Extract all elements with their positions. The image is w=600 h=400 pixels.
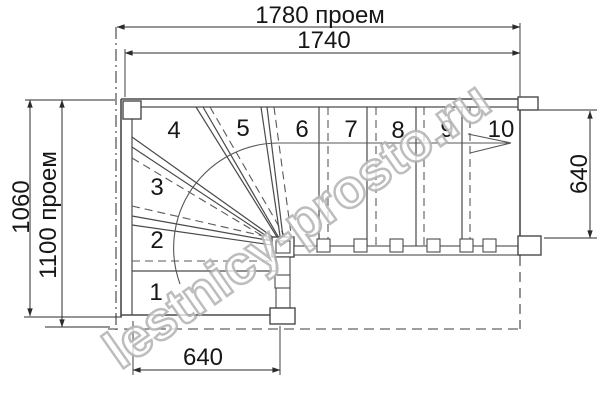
step-label-9: 9 <box>440 116 453 143</box>
top-right-rail-cap <box>518 97 538 110</box>
stair-plan-drawing: 1780 проем 1740 1060 1100 проем 640 640 <box>0 0 600 400</box>
baluster <box>317 239 330 252</box>
dim-label-top-opening: 1780 проем <box>255 2 385 29</box>
dim-label-left-height: 1060 <box>8 180 35 233</box>
staircase-plan-page: 1780 проем 1740 1060 1100 проем 640 640 <box>0 0 600 400</box>
dimension-left-opening: 1100 проем <box>35 100 110 327</box>
step-label-10: 10 <box>488 116 515 143</box>
baluster <box>483 239 496 252</box>
step-label-4: 4 <box>167 117 180 144</box>
dimension-top-stair: 1740 <box>125 27 520 97</box>
step-label-1: 1 <box>149 279 162 306</box>
stair-structure-outline <box>121 97 538 317</box>
lower-rail-end-post <box>270 308 295 324</box>
step-label-7: 7 <box>344 116 357 143</box>
step-label-6: 6 <box>295 116 308 143</box>
dim-label-right-width: 640 <box>566 154 593 194</box>
baluster <box>275 275 290 288</box>
step-label-8: 8 <box>391 117 404 144</box>
dim-label-bottom-width: 640 <box>183 344 223 371</box>
handrail-end-cap <box>518 236 541 255</box>
railing <box>270 236 541 324</box>
newel-post-inner <box>276 241 290 253</box>
baluster <box>354 239 367 252</box>
baluster <box>460 239 473 252</box>
dimension-right-width: 640 <box>538 110 597 238</box>
step-labels: 1 2 3 4 5 6 7 8 9 10 <box>149 115 514 306</box>
dimension-left-height: 1060 <box>8 100 122 317</box>
dim-label-top-stair: 1740 <box>297 27 350 54</box>
step-label-3: 3 <box>150 174 163 201</box>
step-label-2: 2 <box>150 227 163 254</box>
floor-opening-outline <box>108 27 520 330</box>
top-left-rail-post <box>123 101 141 119</box>
baluster <box>427 239 440 252</box>
step-label-5: 5 <box>236 115 249 142</box>
dim-label-left-opening: 1100 проем <box>35 151 62 279</box>
baluster <box>390 239 403 252</box>
